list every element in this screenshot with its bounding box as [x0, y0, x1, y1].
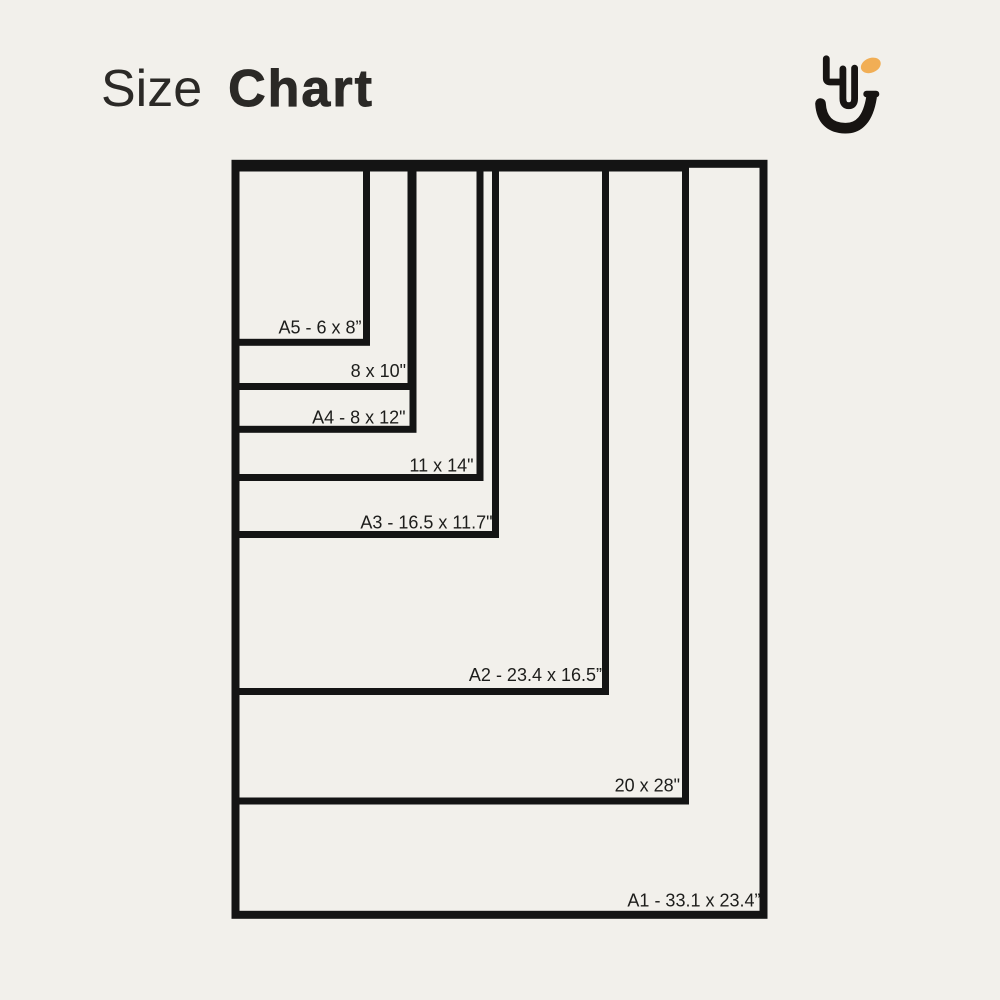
svg-text:20 x 28": 20 x 28" — [615, 776, 680, 796]
svg-text:A4 - 8 x 12": A4 - 8 x 12" — [312, 408, 405, 428]
svg-text:A2 - 23.4 x 16.5”: A2 - 23.4 x 16.5” — [469, 665, 602, 685]
svg-text:A1 - 33.1 x 23.4”: A1 - 33.1 x 23.4” — [627, 891, 760, 911]
svg-text:A3 - 16.5 x 11.7": A3 - 16.5 x 11.7" — [360, 513, 492, 533]
svg-text:11 x 14": 11 x 14" — [409, 456, 473, 476]
svg-text:8 x 10": 8 x 10" — [351, 361, 406, 381]
svg-text:A5 - 6 x 8”: A5 - 6 x 8” — [278, 318, 361, 338]
svg-text:Size Chart: Size Chart — [101, 60, 374, 118]
